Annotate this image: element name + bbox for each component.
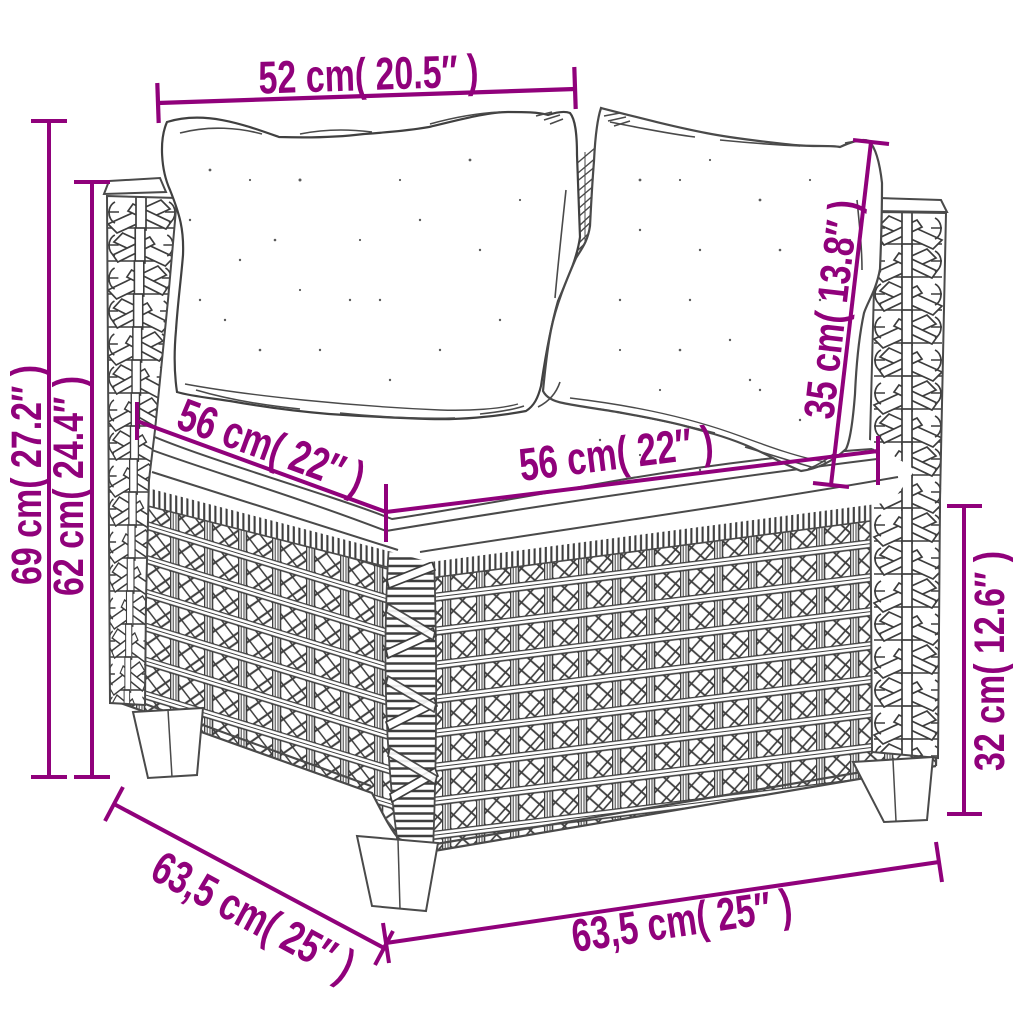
- svg-text:69 cm( 27.2″ ): 69 cm( 27.2″ ): [3, 365, 51, 585]
- svg-text:62 cm( 24.4″ ): 62 cm( 24.4″ ): [45, 376, 93, 596]
- svg-text:52 cm( 20.5″ ): 52 cm( 20.5″ ): [258, 44, 480, 103]
- svg-text:32 cm( 12.6″ ): 32 cm( 12.6″ ): [966, 551, 1014, 771]
